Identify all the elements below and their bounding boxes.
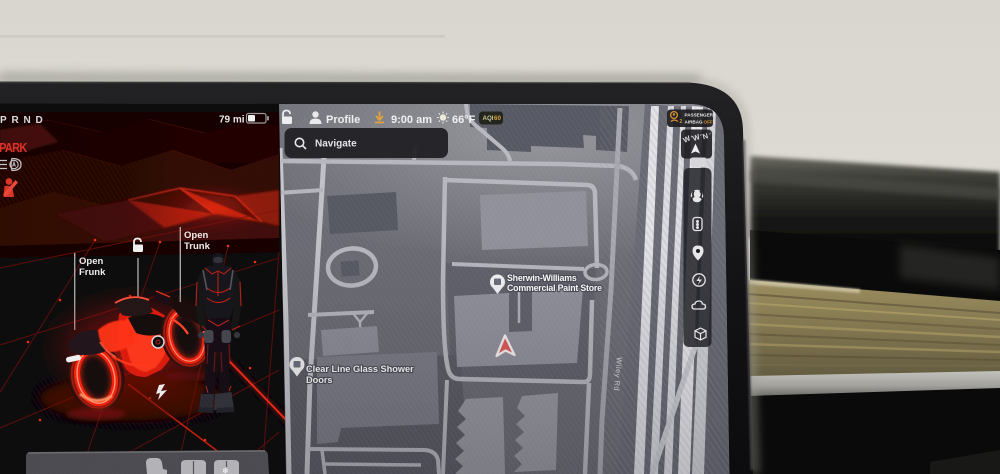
svg-text:AQI: AQI bbox=[483, 115, 494, 122]
svg-text:2: 2 bbox=[680, 119, 683, 125]
svg-text:PASSENGER: PASSENGER bbox=[685, 113, 714, 118]
svg-text:Profile: Profile bbox=[326, 114, 360, 126]
svg-text:OFF: OFF bbox=[704, 120, 713, 125]
svg-text:AIRBAG: AIRBAG bbox=[685, 120, 704, 125]
svg-text:60: 60 bbox=[494, 115, 501, 122]
svg-text:66°F: 66°F bbox=[452, 114, 476, 126]
svg-text:9:00 am: 9:00 am bbox=[391, 114, 432, 126]
svg-text:Navigate: Navigate bbox=[315, 139, 357, 150]
